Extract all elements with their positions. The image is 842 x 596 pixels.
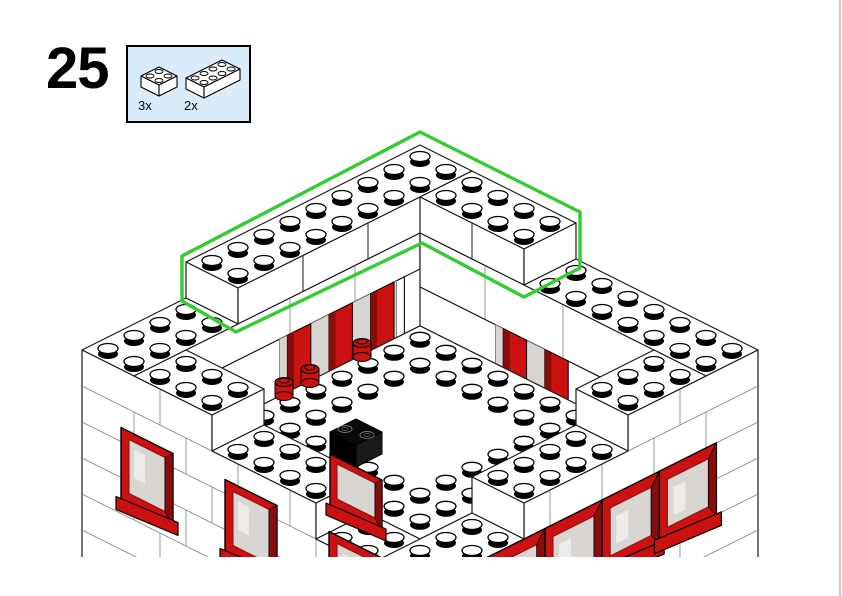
assembly-diagram [0,0,842,596]
page-edge-line [839,0,841,596]
lego-instruction-page: 25 [0,0,842,596]
